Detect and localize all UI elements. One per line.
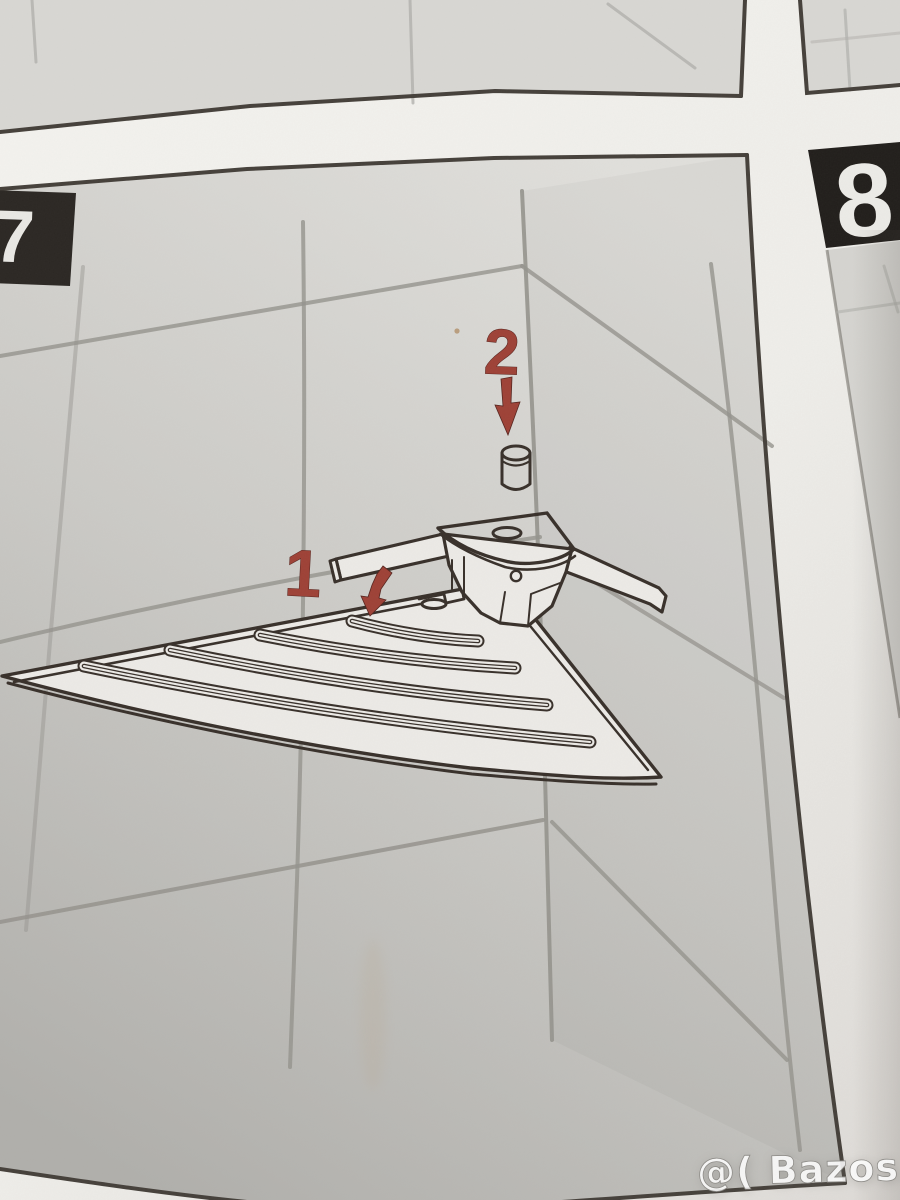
photo-grain-overlay: [0, 0, 900, 1200]
instruction-sheet: 1 2 7 8 @( Bazos.sk @( Bazos.sk: [0, 0, 900, 1200]
manual-photo: 1 2 7 8 @( Bazos.sk @( Bazos.sk: [0, 0, 900, 1200]
